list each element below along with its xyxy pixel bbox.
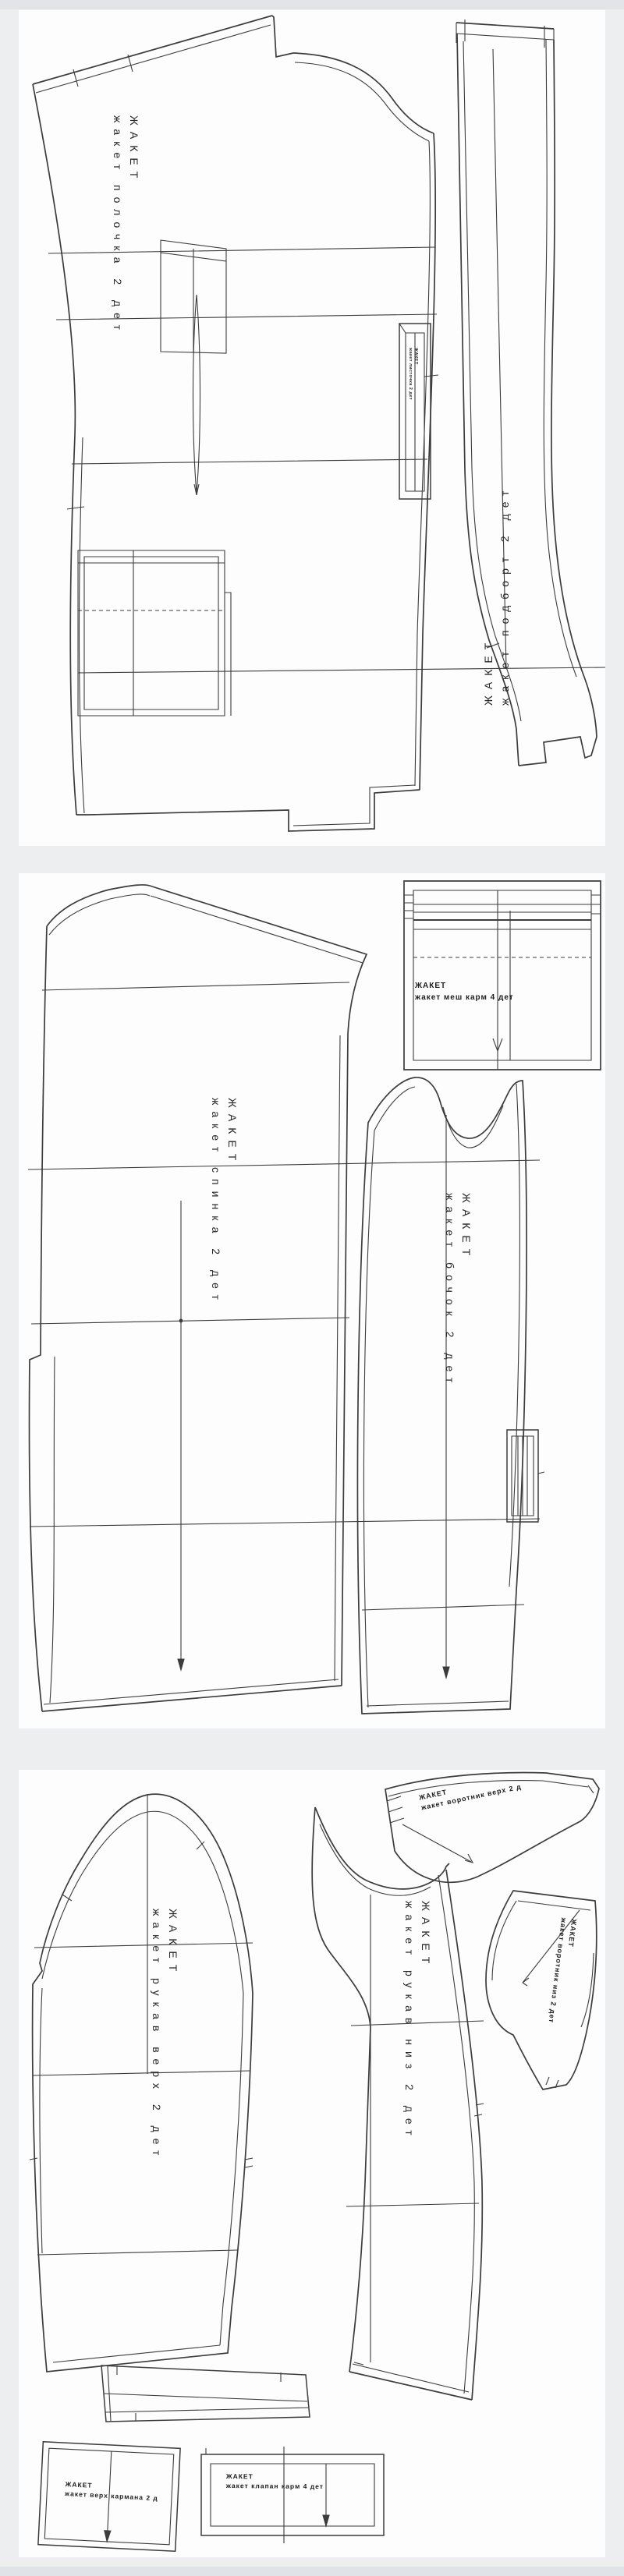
piece-label-listochka-line2: жакет листочка 2 дет bbox=[407, 348, 413, 488]
panel1-drawing bbox=[19, 10, 605, 846]
podbort-outline bbox=[456, 19, 597, 766]
piece-label-rukav-verh-line2: жакет рукав верх 2 дет bbox=[148, 1909, 165, 2275]
mesh-karm-outline bbox=[404, 881, 601, 1070]
polochka-outline bbox=[33, 16, 438, 831]
piece-label-bochok: ЖАКЕТ жакет бочок 2 дет bbox=[441, 1193, 474, 1536]
piece-label-spinka: ЖАКЕТ жакет спинка 2 дет bbox=[207, 1098, 240, 1449]
piece-label-podbort-line2: жакет подборт 2 дет bbox=[497, 316, 513, 706]
bottom-page-edge bbox=[0, 2567, 624, 2576]
top-page-edge bbox=[0, 0, 624, 9]
piece-label-mesh-karm-line1: ЖАКЕТ bbox=[415, 981, 514, 993]
piece-label-mesh-karm-line2: жакет меш карм 4 дет bbox=[415, 993, 514, 1004]
piece-label-listochka: ЖАКЕТ жакет листочка 2 дет bbox=[407, 348, 418, 488]
klapan-outline bbox=[201, 2447, 384, 2543]
piece-label-polochka-line2: жакет полочка 2 дет bbox=[109, 115, 126, 482]
sleeve-band-outline bbox=[101, 2365, 310, 2422]
piece-label-klapan: ЖАКЕТ жакет клапан карм 4 дет bbox=[226, 2472, 324, 2492]
piece-label-spinka-line1: ЖАКЕТ bbox=[224, 1098, 240, 1449]
pattern-sheet-page: ЖАКЕТ жакет полочка 2 дет ЖАКЕТ жакет по… bbox=[0, 0, 624, 2576]
pattern-panel-1 bbox=[19, 10, 605, 846]
piece-label-klapan-line1: ЖАКЕТ bbox=[226, 2472, 324, 2482]
piece-label-polochka-line1: ЖАКЕТ bbox=[126, 115, 142, 482]
pattern-panel-3 bbox=[19, 1770, 605, 2557]
piece-label-listochka-line1: ЖАКЕТ bbox=[413, 348, 418, 488]
piece-label-rukav-verh-line1: ЖАКЕТ bbox=[165, 1909, 181, 2275]
piece-label-rukav-niz-line1: ЖАКЕТ bbox=[417, 1901, 434, 2291]
piece-label-podbort: ЖАКЕТ жакет подборт 2 дет bbox=[480, 316, 513, 706]
panel3-drawing bbox=[19, 1770, 605, 2557]
piece-label-bochok-line2: жакет бочок 2 дет bbox=[441, 1193, 458, 1536]
panel2-drawing bbox=[19, 873, 605, 1729]
spinka-outline bbox=[30, 885, 367, 1711]
piece-label-podbort-line1: ЖАКЕТ bbox=[480, 316, 497, 706]
piece-label-klapan-line2: жакет клапан карм 4 дет bbox=[226, 2481, 324, 2491]
rukav-niz-outline bbox=[312, 1807, 484, 2400]
piece-label-rukav-niz: ЖАКЕТ жакет рукав низ 2 дет bbox=[401, 1901, 434, 2291]
piece-label-bochok-line1: ЖАКЕТ bbox=[458, 1193, 474, 1536]
pattern-panel-2 bbox=[19, 873, 605, 1729]
piece-label-spinka-line2: жакет спинка 2 дет bbox=[207, 1098, 224, 1449]
piece-label-rukav-verh: ЖАКЕТ жакет рукав верх 2 дет bbox=[148, 1909, 181, 2275]
piece-label-rukav-niz-line2: жакет рукав низ 2 дет bbox=[401, 1901, 417, 2291]
rukav-verh-outline bbox=[30, 1794, 253, 2372]
piece-label-mesh-karm: ЖАКЕТ жакет меш карм 4 дет bbox=[415, 981, 514, 1003]
piece-label-polochka: ЖАКЕТ жакет полочка 2 дет bbox=[109, 115, 142, 482]
